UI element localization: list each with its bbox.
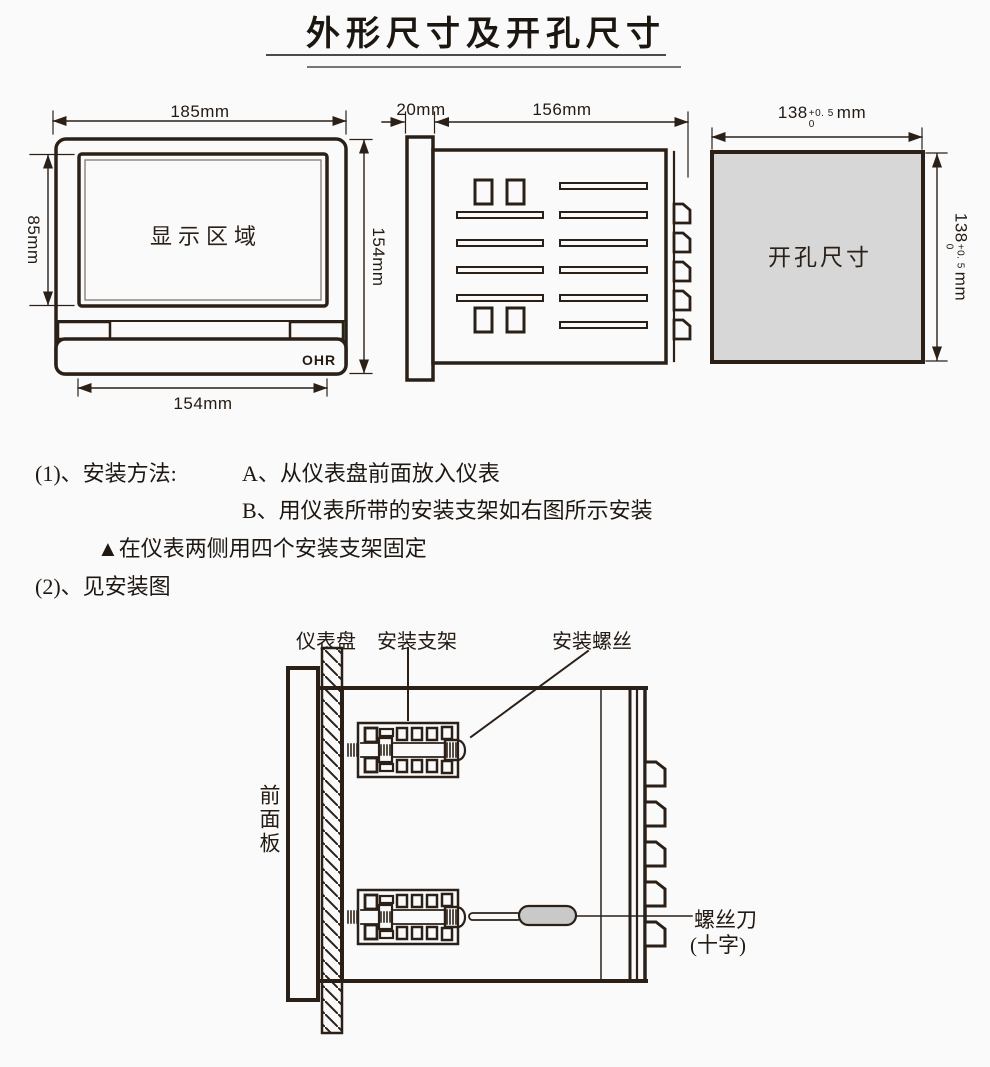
cutout-height-unit: mm [952,272,971,301]
cutout-width-tol-upper: +0. 5 [809,108,834,119]
screw-label: 安装螺丝 [552,625,632,654]
cutout-width-tol-lower: 0 [809,119,815,130]
instruction-step-a: A、从仪表盘前面放入仪表 [242,456,500,488]
front-body-width-dimension: 154mm [173,394,232,414]
cutout-width-unit: mm [837,103,866,122]
instrument-panel-hatched [322,648,342,1033]
screwdriver-handle [519,906,576,925]
cutout-width-dimension: 138+0. 50mm [778,103,866,130]
instruction-item1: (1)、安装方法: [35,456,177,488]
title-underline [266,55,681,67]
cutout-height-tol-upper: +0. 5 [955,244,966,269]
instruction-item2: (2)、见安装图 [35,569,171,601]
cutout-height-value: 138 [952,213,971,243]
screwdriver-type-label: (十字) [690,929,746,959]
install-diagram-drawing [288,648,692,1033]
instruction-step-b: B、用仪表所带的安装支架如右图所示安装 [242,493,653,525]
mounting-bracket-lower [348,890,465,944]
side-front-depth-dimension: 20mm [396,100,445,120]
brand-logo: OHR [302,352,336,368]
mounting-bracket-upper [348,723,465,777]
cutout-width-value: 138 [778,103,808,122]
manual-page: 外形尺寸及开孔尺寸 185mm 85mm 154mm 154mm 显示区域 OH… [0,0,990,1067]
screwdriver-blade [469,913,521,920]
display-area-label: 显示区域 [150,219,262,251]
side-view-drawing [382,112,690,380]
screw-leader-line [471,651,588,737]
front-panel-bezel [288,668,318,1000]
panel-label: 仪表盘 [296,625,356,654]
front-width-dimension: 185mm [170,102,229,122]
cutout-height-dimension: 138+0. 50mm [944,213,971,301]
front-height-dimension: 154mm [368,227,388,286]
cutout-height-tol-lower: 0 [944,244,955,250]
side-body-depth-dimension: 156mm [532,100,591,120]
instruction-note: ▲在仪表两侧用四个安装支架固定 [97,531,427,563]
bracket-label: 安装支架 [377,625,457,654]
page-title: 外形尺寸及开孔尺寸 [306,6,666,55]
cutout-area-label: 开孔尺寸 [768,238,872,272]
display-height-dimension: 85mm [23,215,43,264]
front-panel-label: 前面板 [254,784,284,856]
